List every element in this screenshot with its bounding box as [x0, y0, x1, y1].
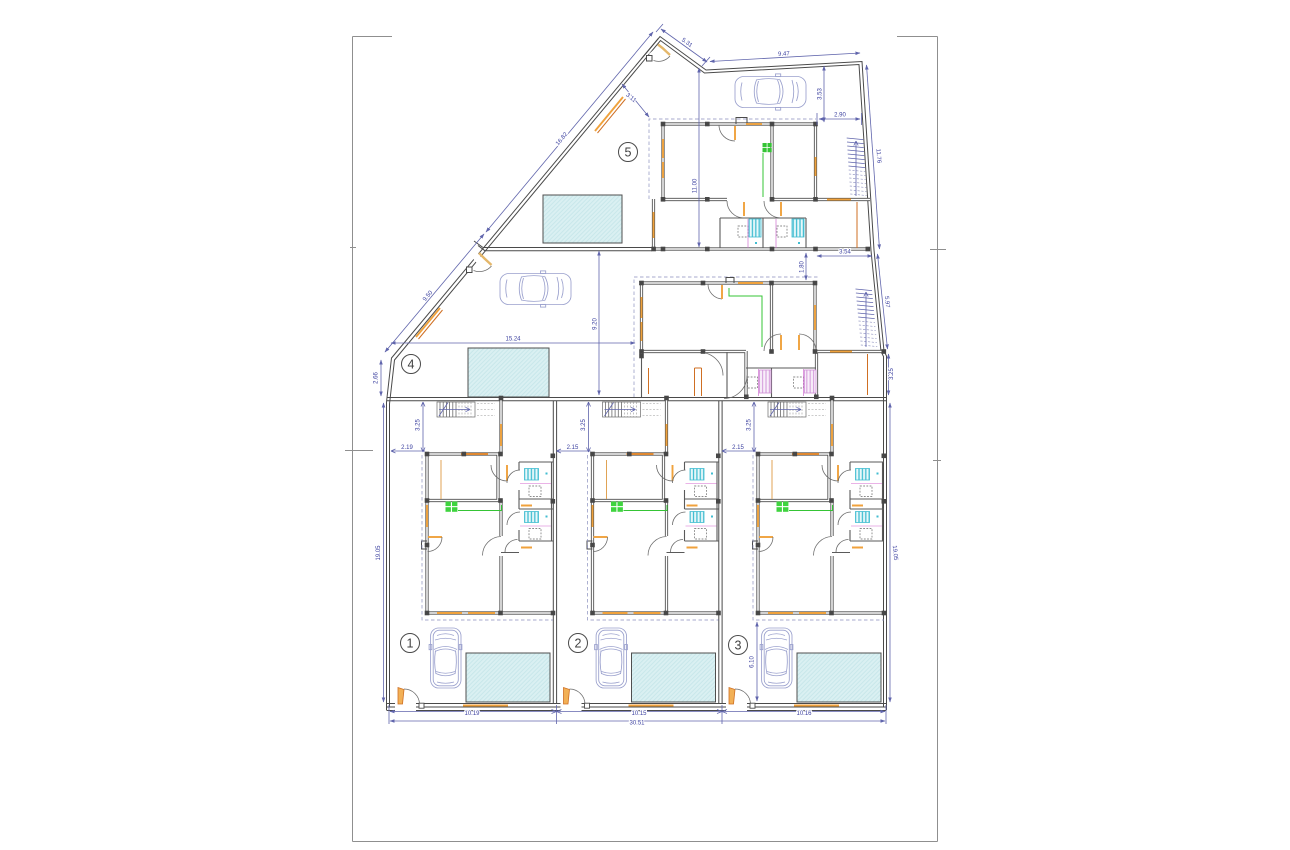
svg-text:19.05: 19.05: [376, 545, 382, 561]
svg-text:2.15: 2.15: [732, 445, 744, 451]
svg-text:1.80: 1.80: [800, 261, 806, 273]
svg-text:11.76: 11.76: [874, 148, 881, 164]
svg-text:3.25: 3.25: [747, 419, 753, 431]
svg-text:3.54: 3.54: [839, 250, 851, 256]
svg-text:30.51: 30.51: [629, 721, 645, 727]
svg-text:11.00: 11.00: [693, 178, 699, 193]
svg-text:4: 4: [408, 358, 415, 372]
svg-text:2.19: 2.19: [401, 445, 413, 451]
svg-text:3: 3: [735, 639, 742, 653]
svg-text:3.25: 3.25: [416, 419, 422, 431]
svg-text:9.47: 9.47: [778, 51, 791, 58]
svg-text:2.66: 2.66: [374, 372, 380, 384]
svg-text:10.19: 10.19: [464, 711, 480, 717]
svg-text:3.25: 3.25: [889, 368, 895, 380]
svg-text:5.97: 5.97: [883, 296, 890, 309]
svg-text:2.90: 2.90: [834, 113, 846, 119]
svg-text:6.10: 6.10: [750, 656, 756, 668]
svg-text:3.25: 3.25: [581, 419, 587, 431]
svg-text:10.16: 10.16: [796, 711, 812, 717]
svg-text:10.15: 10.15: [631, 711, 647, 717]
svg-text:5: 5: [625, 146, 632, 160]
svg-text:15.24: 15.24: [505, 337, 521, 343]
svg-text:1: 1: [407, 637, 414, 651]
svg-text:2: 2: [575, 637, 582, 651]
svg-text:3.53: 3.53: [818, 88, 824, 100]
svg-text:9.20: 9.20: [593, 318, 599, 330]
svg-text:2.15: 2.15: [567, 445, 579, 451]
